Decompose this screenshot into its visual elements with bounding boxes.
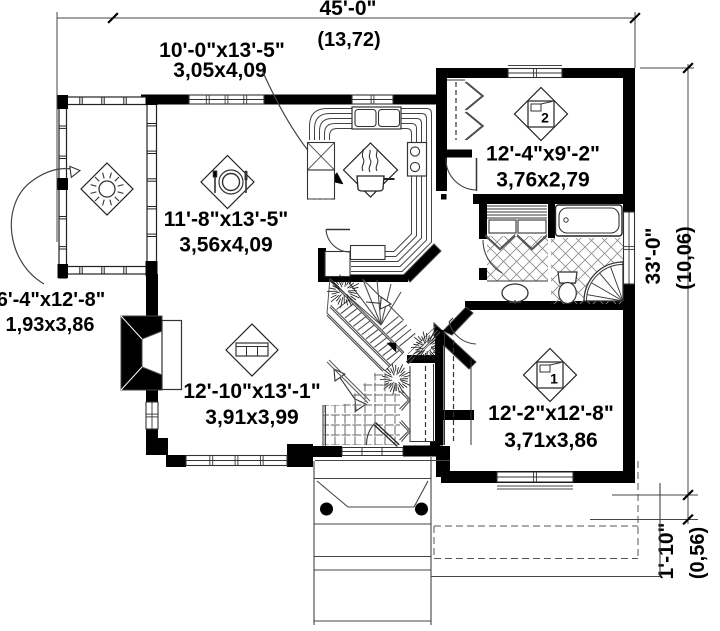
svg-text:6'-4"x12'-8": 6'-4"x12'-8" xyxy=(0,289,105,311)
svg-text:33'-0": 33'-0" xyxy=(642,228,665,285)
svg-text:12'-10"x13'-1": 12'-10"x13'-1" xyxy=(183,380,320,403)
svg-text:2: 2 xyxy=(541,110,549,126)
svg-text:1,93x3,86: 1,93x3,86 xyxy=(6,314,95,336)
svg-text:1'-10": 1'-10" xyxy=(655,523,678,580)
svg-text:3,71x3,86: 3,71x3,86 xyxy=(504,429,597,452)
svg-text:11'-8"x13'-5": 11'-8"x13'-5" xyxy=(164,208,288,231)
svg-text:(13,72): (13,72) xyxy=(317,29,380,51)
svg-text:3,05x4,09: 3,05x4,09 xyxy=(173,59,266,82)
svg-text:(0,56): (0,56) xyxy=(687,527,709,579)
svg-text:3,76x2,79: 3,76x2,79 xyxy=(496,169,589,192)
svg-text:12'-4"x9'-2": 12'-4"x9'-2" xyxy=(486,143,600,166)
svg-text:3,91x3,99: 3,91x3,99 xyxy=(205,406,298,429)
svg-text:(10,06): (10,06) xyxy=(674,226,696,289)
svg-text:1: 1 xyxy=(550,371,558,387)
svg-text:12'-2"x12'-8": 12'-2"x12'-8" xyxy=(488,402,614,425)
svg-text:3,56x4,09: 3,56x4,09 xyxy=(179,234,272,257)
svg-text:45'-0": 45'-0" xyxy=(320,0,377,20)
